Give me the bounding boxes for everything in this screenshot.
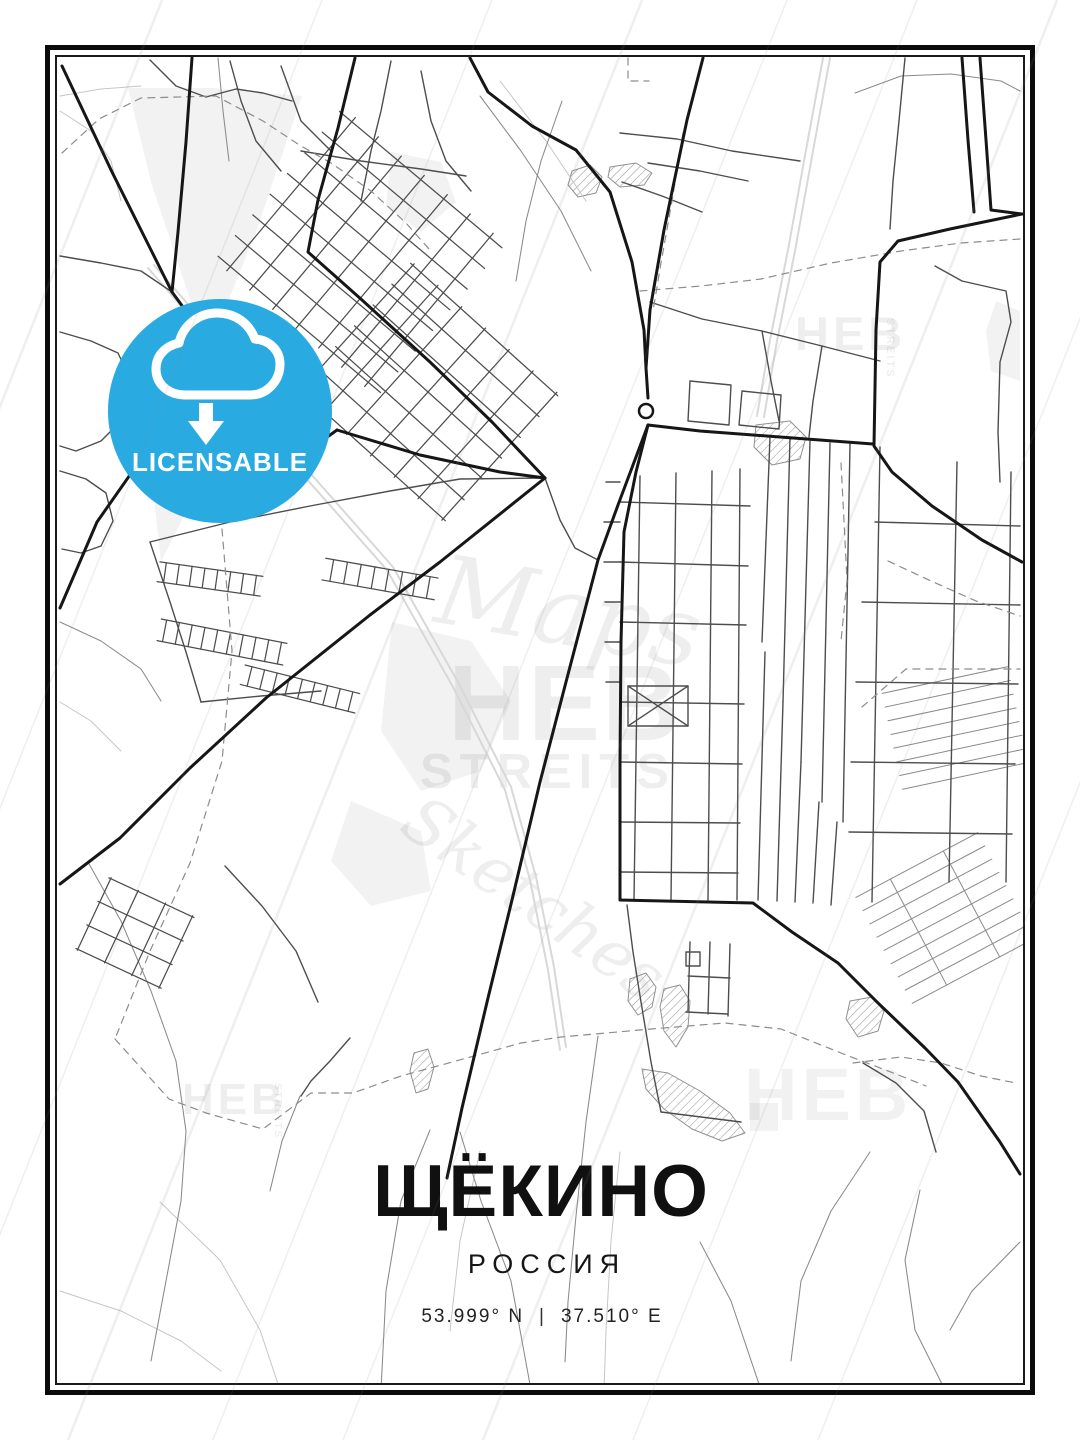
coordinate-separator: |	[539, 1306, 546, 1327]
coordinates: 53.999° N|37.510° E	[58, 1306, 1024, 1328]
licensable-badge: LICENSABLE	[108, 299, 332, 523]
country-subtitle: РОССИЯ	[58, 1249, 1029, 1280]
badge-label: LICENSABLE	[108, 447, 332, 478]
map-poster: Maps HEB STREITS Sketches HEB STREITS HE…	[0, 0, 1080, 1440]
cloud-download-icon	[108, 299, 332, 523]
latitude: 53.999° N	[421, 1306, 524, 1327]
city-title: ЩЁКИНО	[58, 1150, 1023, 1233]
longitude: 37.510° E	[561, 1306, 663, 1327]
